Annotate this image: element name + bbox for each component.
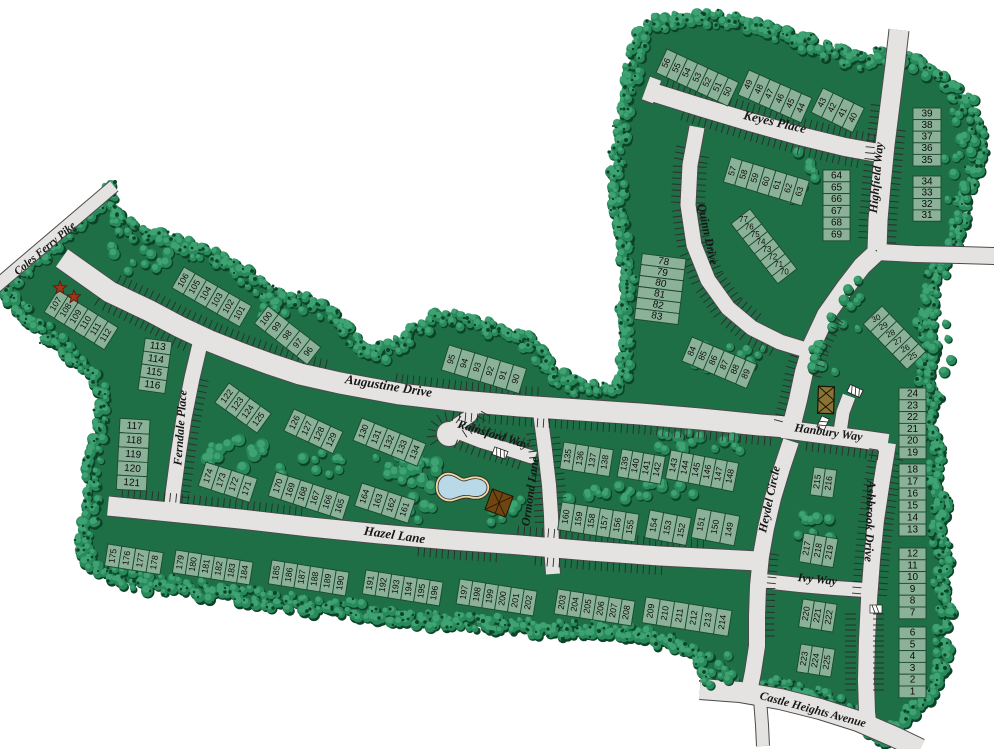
svg-text:114: 114 — [147, 353, 165, 366]
svg-text:120: 120 — [124, 463, 142, 475]
svg-text:113: 113 — [149, 340, 167, 353]
svg-text:39: 39 — [921, 108, 933, 119]
svg-text:121: 121 — [123, 477, 141, 489]
svg-text:119: 119 — [125, 449, 142, 461]
svg-text:34: 34 — [921, 176, 933, 187]
svg-text:38: 38 — [921, 120, 933, 131]
svg-text:118: 118 — [125, 434, 142, 446]
svg-text:36: 36 — [921, 143, 933, 154]
svg-text:33: 33 — [921, 188, 933, 199]
svg-text:35: 35 — [921, 155, 933, 166]
svg-text:115: 115 — [145, 366, 163, 379]
svg-text:32: 32 — [921, 199, 933, 210]
svg-text:116: 116 — [144, 379, 162, 392]
svg-text:37: 37 — [921, 132, 933, 143]
svg-text:117: 117 — [126, 420, 143, 432]
